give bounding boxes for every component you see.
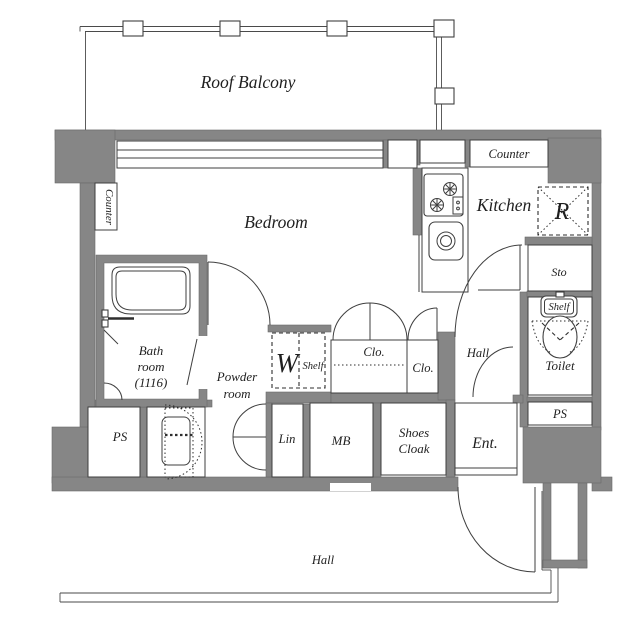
wall xyxy=(446,400,455,477)
label-shoes-1: Shoes xyxy=(399,425,429,440)
wall xyxy=(513,395,523,403)
label-powder-1: Powder xyxy=(216,369,258,384)
label-bedroom: Bedroom xyxy=(244,212,308,232)
label-shoes-2: Cloak xyxy=(398,441,429,456)
wall xyxy=(543,560,587,568)
bedroom-window xyxy=(117,141,383,168)
wall xyxy=(592,140,601,430)
wall xyxy=(268,325,331,332)
wall xyxy=(527,397,592,402)
label-kitchen: Kitchen xyxy=(476,195,532,215)
label-counter-kitchen: Counter xyxy=(489,147,530,161)
label-counter-bedroom: Counter xyxy=(103,189,115,226)
corridor-outline xyxy=(60,491,558,602)
bedroom-powder-door-icon xyxy=(208,262,270,325)
wall xyxy=(140,407,147,477)
label-mb: MB xyxy=(331,433,351,448)
kitchen-cabinet xyxy=(420,140,465,163)
label-ps-left: PS xyxy=(112,429,128,444)
label-hall-inner: Hall xyxy=(466,346,490,360)
bathroom-door-gap xyxy=(198,336,208,389)
bathtub-icon xyxy=(102,267,190,344)
label-washer-shelf: Shelf xyxy=(303,361,326,372)
linen-double-door-icon xyxy=(233,404,266,470)
wall xyxy=(465,140,470,167)
wall xyxy=(578,483,587,568)
label-bath-2: room xyxy=(138,359,165,374)
wall xyxy=(523,427,601,483)
wall xyxy=(548,138,601,183)
wall xyxy=(543,483,551,568)
label-sto: Sto xyxy=(551,265,566,279)
label-closet-left: Clo. xyxy=(363,345,384,359)
wall xyxy=(266,403,272,477)
railing-post-icon xyxy=(435,88,454,104)
wall xyxy=(520,292,528,427)
railing-post-icon xyxy=(327,21,347,36)
label-entrance: Ent. xyxy=(471,435,497,452)
wall xyxy=(373,403,381,477)
label-powder-2: room xyxy=(224,386,251,401)
label-washer: W xyxy=(276,348,301,378)
wall xyxy=(303,404,310,477)
sink-icon xyxy=(429,222,463,260)
label-ps-right: PS xyxy=(552,407,568,421)
label-hall-outer: Hall xyxy=(311,553,335,567)
closet-right-door-icon xyxy=(408,308,437,340)
bathroom-door-leaf xyxy=(187,339,197,385)
wall xyxy=(383,140,388,168)
bottom-wall-notch xyxy=(330,483,371,491)
railing-post-icon xyxy=(434,20,454,37)
kitchen-cabinet xyxy=(388,140,417,168)
label-toilet: Toilet xyxy=(545,358,575,373)
label-bath-3: (1116) xyxy=(135,375,168,390)
railing-post-icon xyxy=(220,21,240,36)
wall xyxy=(55,130,601,140)
label-toilet-shelf: Shelf xyxy=(549,302,572,313)
wall xyxy=(266,392,331,403)
stove-icon xyxy=(424,174,463,216)
wall xyxy=(413,168,422,235)
label-bath-1: Bath xyxy=(139,343,164,358)
wall xyxy=(55,130,115,183)
room-outlines xyxy=(88,140,592,477)
wall xyxy=(52,477,458,491)
label-refrigerator: R xyxy=(554,199,570,225)
wall xyxy=(438,332,455,400)
closet-double-door-icon xyxy=(333,303,407,340)
wall xyxy=(525,237,592,245)
wall xyxy=(331,393,452,403)
floor-plan-drawing: Roof Balcony Bedroom Kitchen Counter Cou… xyxy=(0,0,640,640)
railing-post-icon xyxy=(123,21,143,36)
label-closet-right: Clo. xyxy=(412,361,433,375)
entrance-door-icon xyxy=(458,487,535,572)
label-roof-balcony: Roof Balcony xyxy=(200,72,296,92)
floor-plan: Roof Balcony Bedroom Kitchen Counter Cou… xyxy=(0,0,640,640)
label-lin: Lin xyxy=(278,432,296,446)
bathroom-corner-arc xyxy=(104,383,122,400)
wall xyxy=(80,183,95,430)
